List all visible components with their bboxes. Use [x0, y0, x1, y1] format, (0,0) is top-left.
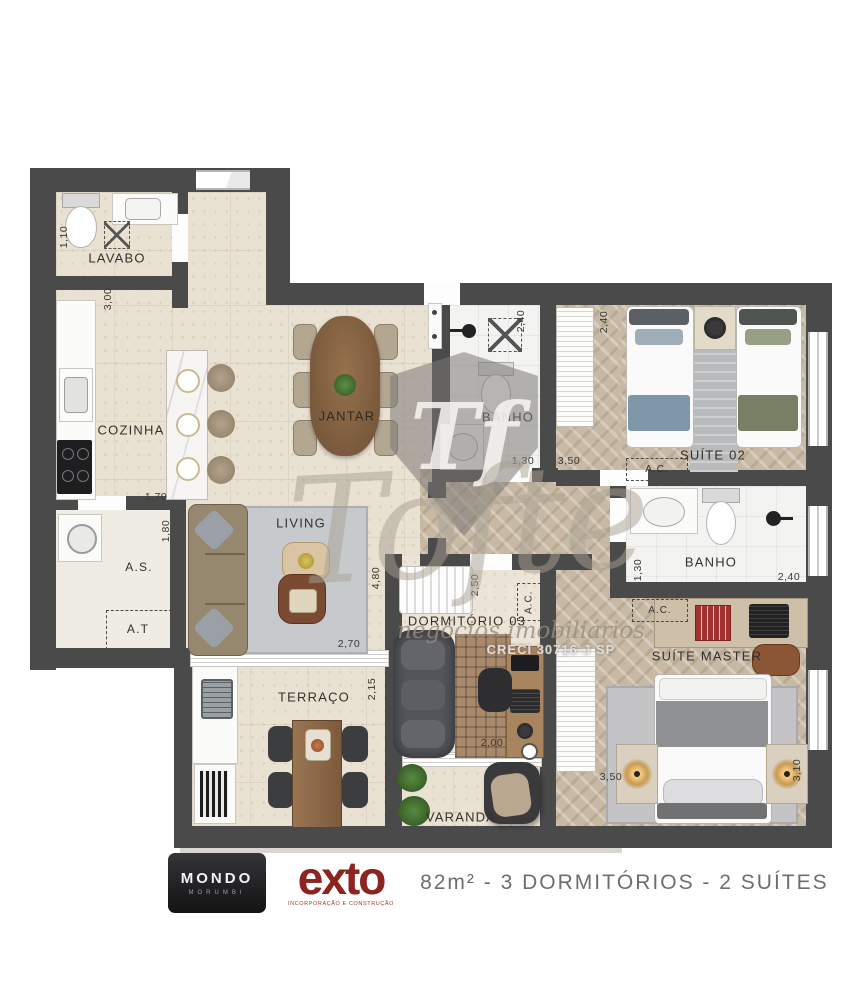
door-opening — [470, 554, 512, 570]
stool — [207, 410, 235, 438]
outdoor-table — [292, 720, 342, 828]
stool — [207, 456, 235, 484]
outdoor-chair — [342, 726, 368, 762]
wall — [30, 168, 290, 192]
clock — [521, 743, 538, 760]
ac-condenser — [194, 764, 236, 824]
monitor — [511, 655, 539, 671]
lounge-sofa — [393, 630, 455, 758]
outdoor-chair — [342, 772, 368, 808]
shower-arm — [450, 329, 464, 332]
lamp-base — [784, 771, 790, 777]
wall — [174, 826, 832, 848]
room-label-banho2: BANHO — [685, 555, 737, 570]
kitchen-sink — [59, 368, 93, 422]
wall — [30, 648, 182, 668]
sink-basin — [64, 377, 88, 413]
dim-cozinha-h: 1,80 — [160, 520, 172, 542]
blanket — [738, 395, 798, 431]
sink — [440, 424, 484, 470]
room-label-suite-master: SUÍTE MASTER — [652, 649, 762, 664]
entry-door-opening — [424, 283, 460, 305]
mondo-logo: MONDO MORUMBI — [168, 853, 266, 913]
door-hinge — [432, 310, 437, 315]
room-label-jantar: JANTAR — [319, 409, 376, 424]
laptop — [749, 604, 789, 638]
room-label-at: A.T — [127, 622, 149, 636]
dim-master-h: 3,10 — [791, 759, 803, 781]
tray — [305, 729, 331, 761]
shower-head — [462, 324, 476, 338]
burner — [62, 448, 74, 460]
dim-suite02: 2,40 — [598, 311, 610, 333]
ac-label: A.C. — [648, 605, 671, 616]
toilet — [478, 362, 512, 414]
dim-banho2-d: 2,40 — [778, 571, 800, 583]
wall — [626, 582, 808, 598]
mondo-name: MONDO — [181, 870, 254, 887]
washing-machine — [58, 514, 102, 562]
exto-sub: INCORPORAÇÃO E CONSTRUÇÃO — [288, 901, 394, 907]
sofa-cushion-line — [205, 603, 245, 605]
washer-door — [67, 524, 97, 554]
tray — [289, 589, 317, 613]
burner — [77, 470, 89, 482]
plan-summary: 82m² - 3 DORMITÓRIOS - 2 SUÍTES — [420, 871, 829, 895]
ac-area-suite02: A.C. — [626, 458, 688, 481]
blanket — [628, 395, 690, 431]
outdoor-chair — [268, 726, 294, 762]
pillow — [745, 329, 791, 345]
room-label-cozinha: COZINHA — [98, 423, 165, 438]
wall — [428, 482, 446, 498]
room-label-suite02: SUÍTE 02 — [680, 448, 746, 463]
decor — [311, 739, 324, 752]
nightstand — [694, 306, 736, 350]
entry-door-leaf — [428, 303, 442, 349]
room-label-dormitorio03: DORMITÓRIO 03 — [408, 614, 526, 629]
ac-area-master: A.C. — [632, 599, 688, 622]
door-opening — [486, 468, 532, 482]
bed — [626, 306, 694, 448]
headboard — [739, 309, 797, 325]
wall — [174, 648, 192, 840]
dim-banho1-w: 1,30 — [512, 455, 534, 467]
room-label-banho1: BANHO — [482, 410, 534, 425]
door-handle — [432, 334, 437, 339]
window — [808, 506, 828, 576]
dim-master-w: 3,50 — [600, 771, 622, 783]
dim-banho1-h: 2,40 — [515, 310, 527, 332]
grill — [201, 679, 233, 719]
burner — [62, 470, 74, 482]
cushion — [401, 680, 445, 710]
burner — [77, 448, 89, 460]
ac-label: A.C. — [524, 590, 535, 613]
dining-table — [310, 316, 380, 456]
dim-terraco: 2,15 — [366, 678, 378, 700]
room-label-living: LIVING — [276, 516, 326, 531]
window — [808, 332, 828, 446]
speaker — [517, 723, 533, 739]
dim-dorm3-h: 2,50 — [469, 574, 481, 596]
window — [196, 170, 250, 190]
bed — [399, 566, 473, 614]
dim-nook: 3,00 — [102, 288, 114, 310]
toilet-bowl — [706, 501, 736, 545]
lamp-base — [634, 771, 640, 777]
cushion — [401, 720, 445, 748]
window — [808, 670, 828, 750]
shower-arm — [779, 517, 793, 520]
exto-name: exto — [298, 859, 385, 898]
stove — [57, 440, 92, 494]
centerpiece-plant — [334, 374, 356, 396]
dim-living-w: 2,70 — [338, 638, 360, 650]
coffee-table — [278, 574, 326, 624]
toilet-bowl — [481, 374, 511, 414]
plate — [176, 413, 200, 437]
stool — [207, 364, 235, 392]
pillow — [635, 329, 683, 345]
sofa-cushion-line — [205, 553, 245, 555]
throw-pillow — [193, 509, 235, 551]
throw-pillow — [193, 607, 235, 649]
door-opening — [610, 498, 626, 542]
laptop — [510, 689, 540, 713]
dim-banho2-w: 1,30 — [632, 559, 644, 581]
desk-chair — [478, 668, 512, 712]
room-label-as: A.S. — [125, 560, 152, 574]
sink — [630, 488, 698, 534]
dim-hall: 3,50 — [558, 455, 580, 467]
plant — [397, 764, 427, 792]
books — [695, 605, 731, 641]
wardrobe — [556, 307, 594, 427]
room-label-terraco: TERRAÇO — [278, 690, 350, 705]
pillow — [659, 678, 767, 700]
toilet — [702, 488, 738, 546]
wardrobe — [556, 648, 596, 772]
plate — [176, 457, 200, 481]
grill-counter — [192, 666, 238, 764]
room-label-varanda: VARANDA — [426, 810, 496, 825]
floor-plan: A.C. A.C. A.C. LAVABO COZINHA JANTAR BAN… — [0, 0, 862, 1000]
wall — [170, 496, 186, 650]
sink-basin — [448, 433, 478, 461]
dim-lavabo: 1,10 — [58, 226, 70, 248]
exto-logo: exto INCORPORAÇÃO E CONSTRUÇÃO — [288, 859, 394, 906]
sofa — [188, 504, 248, 656]
sink-basin — [125, 198, 161, 220]
dim-cozinha-w: 1,70 — [145, 491, 167, 503]
cushion — [401, 640, 445, 670]
foot-throw — [657, 803, 767, 819]
nightstand — [616, 744, 658, 804]
ac-label: A.C. — [645, 464, 668, 475]
room-label-lavabo: LAVABO — [88, 251, 145, 266]
sink-basin — [643, 497, 685, 527]
wall — [266, 283, 816, 305]
lamp — [704, 317, 726, 339]
condenser-louvers — [200, 771, 228, 817]
floor-drain — [104, 221, 130, 249]
bed — [654, 674, 772, 824]
headboard — [629, 309, 689, 325]
dim-living-h: 4,80 — [370, 567, 382, 589]
footer: MONDO MORUMBI exto INCORPORAÇÃO E CONSTR… — [168, 853, 829, 913]
dim-dorm3-w: 2,00 — [481, 737, 503, 749]
kitchen-island — [166, 350, 208, 500]
blanket — [656, 701, 768, 747]
plate — [176, 369, 200, 393]
outdoor-chair — [268, 772, 294, 808]
wall — [540, 305, 556, 482]
decor-bowl — [298, 553, 314, 569]
wall — [30, 168, 56, 670]
mondo-sub: MORUMBI — [189, 890, 246, 896]
bed — [736, 306, 802, 448]
